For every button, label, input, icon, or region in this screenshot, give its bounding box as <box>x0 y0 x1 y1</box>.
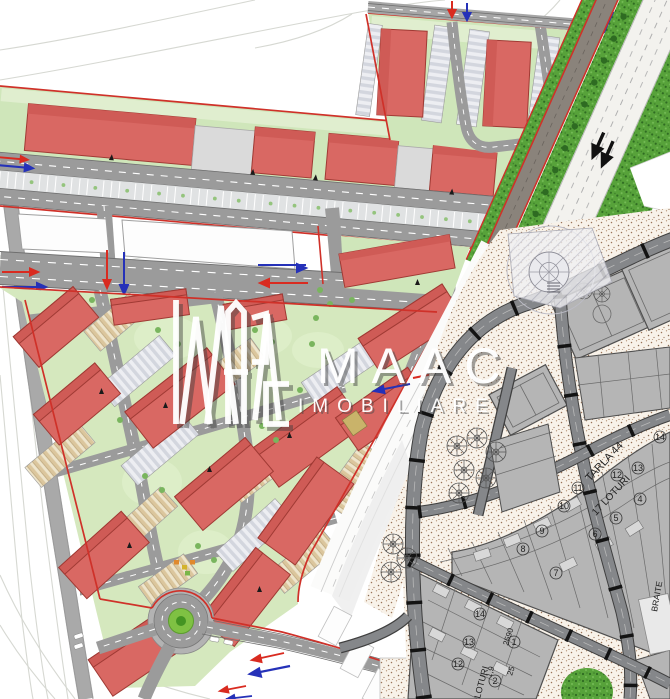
svg-text:12: 12 <box>453 659 463 669</box>
svg-text:14: 14 <box>655 432 665 442</box>
svg-text:IMOBILIARE: IMOBILIARE <box>298 396 497 417</box>
svg-text:MAAC: MAAC <box>317 338 513 394</box>
svg-text:11: 11 <box>573 483 582 493</box>
svg-text:6: 6 <box>592 529 597 539</box>
svg-text:9: 9 <box>539 526 544 536</box>
svg-text:13: 13 <box>464 637 474 647</box>
svg-text:13: 13 <box>633 463 643 473</box>
svg-text:7: 7 <box>553 568 558 578</box>
svg-text:5: 5 <box>613 513 618 523</box>
svg-text:14: 14 <box>475 609 485 619</box>
svg-text:8: 8 <box>520 544 525 554</box>
svg-text:10: 10 <box>559 501 569 511</box>
svg-text:4: 4 <box>637 494 642 504</box>
